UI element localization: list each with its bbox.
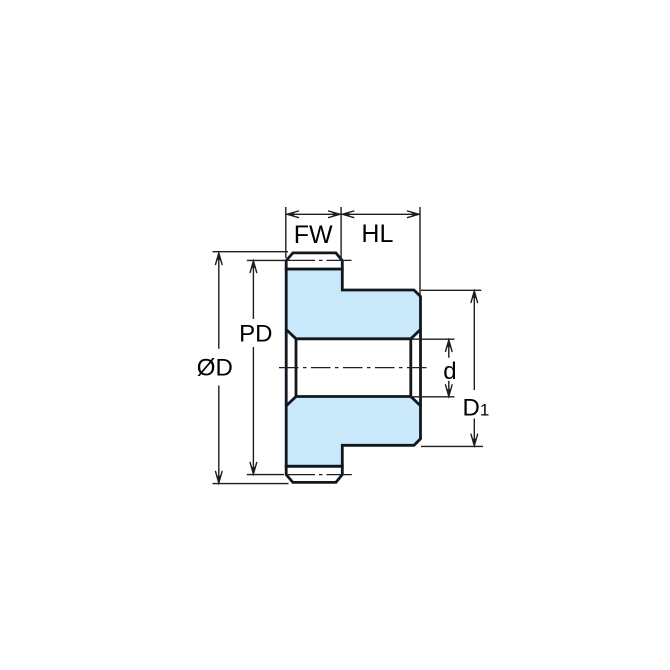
svg-text:d: d (443, 358, 456, 385)
svg-text:HL: HL (361, 220, 393, 248)
svg-text:PD: PD (239, 321, 272, 348)
svg-text:FW: FW (294, 221, 333, 249)
svg-text:D1: D1 (463, 394, 490, 421)
svg-text:ØD: ØD (197, 355, 233, 382)
